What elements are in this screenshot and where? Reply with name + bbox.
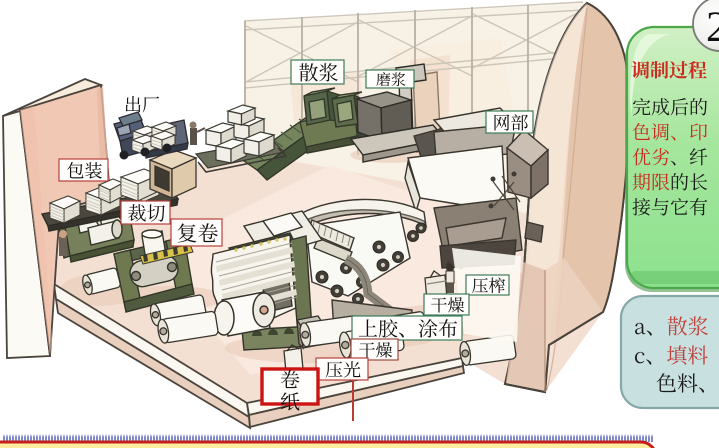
svg-text:2: 2 xyxy=(706,4,719,51)
